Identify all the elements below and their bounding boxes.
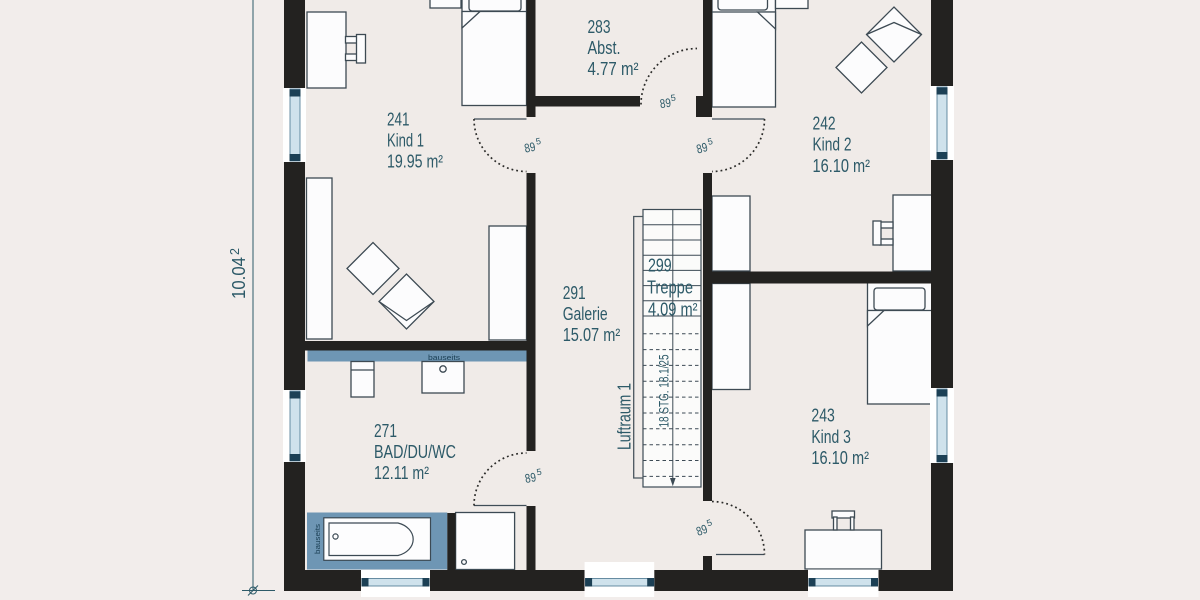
svg-text:4.09 m²: 4.09 m² <box>648 300 698 320</box>
svg-text:271: 271 <box>374 421 397 441</box>
svg-text:241: 241 <box>387 110 410 130</box>
svg-text:291: 291 <box>563 283 586 303</box>
svg-text:283: 283 <box>588 17 611 37</box>
svg-text:Abst.: Abst. <box>588 38 621 58</box>
svg-text:18 STG. 18.1/25: 18 STG. 18.1/25 <box>656 354 672 427</box>
svg-text:bauseits: bauseits <box>313 524 322 554</box>
svg-text:299: 299 <box>648 256 672 276</box>
svg-text:16.10 m²: 16.10 m² <box>813 156 871 176</box>
svg-text:Luftraum 1: Luftraum 1 <box>614 383 635 450</box>
svg-text:242: 242 <box>813 113 836 133</box>
svg-text:Kind 1: Kind 1 <box>387 131 424 151</box>
svg-text:Galerie: Galerie <box>563 304 608 324</box>
svg-text:BAD/DU/WC: BAD/DU/WC <box>374 442 456 462</box>
svg-text:Kind 2: Kind 2 <box>813 135 852 155</box>
svg-text:12.11 m²: 12.11 m² <box>374 463 429 483</box>
svg-text:bauseits: bauseits <box>428 353 460 362</box>
svg-text:Treppe: Treppe <box>647 278 693 298</box>
svg-text:16.10 m²: 16.10 m² <box>811 448 869 468</box>
svg-text:4.77 m²: 4.77 m² <box>588 59 639 79</box>
svg-text:10.04: 10.04 <box>228 257 249 299</box>
svg-text:15.07 m²: 15.07 m² <box>563 325 621 345</box>
svg-text:243: 243 <box>811 405 834 425</box>
svg-text:Kind 3: Kind 3 <box>811 427 851 447</box>
svg-text:19.95 m²: 19.95 m² <box>387 152 443 172</box>
svg-text:2: 2 <box>228 248 242 255</box>
